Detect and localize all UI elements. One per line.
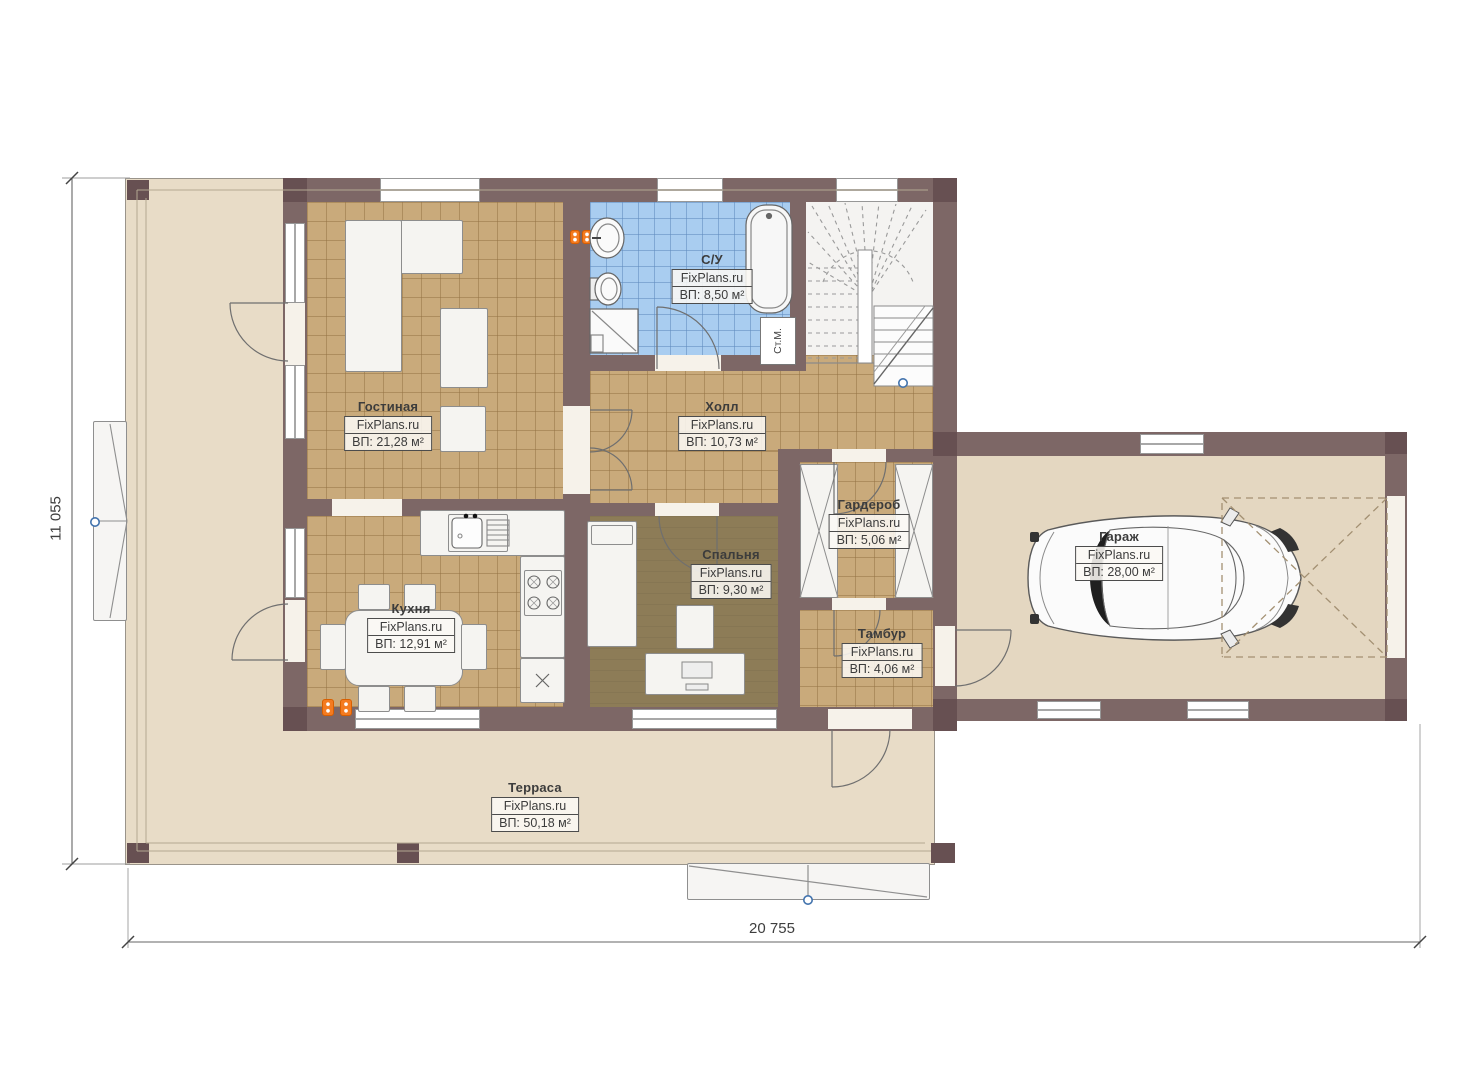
toilet [590,273,621,305]
kitchen-sink-icon [452,514,509,548]
room-area: ВП: 28,00 м² [1076,564,1162,580]
watermark: FixPlans.ru [673,270,752,287]
room-info-box: FixPlans.ru ВП: 28,00 м² [1075,546,1163,581]
washing-machine-label: Ст.М. [772,328,784,354]
desk-items [682,662,712,690]
room-area: ВП: 12,91 м² [368,636,454,652]
room-name: Гостиная [344,399,432,414]
room-area: ВП: 10,73 м² [679,434,765,450]
room-info-box: FixPlans.ru ВП: 12,91 м² [367,618,455,653]
room-label-vestibule: Тамбур FixPlans.ru ВП: 4,06 м² [842,626,923,678]
room-label-garage: Гараж FixPlans.ru ВП: 28,00 м² [1075,529,1163,581]
watermark: FixPlans.ru [368,619,454,636]
shower-tray [590,309,638,353]
room-area: ВП: 4,06 м² [843,661,922,677]
watermark: FixPlans.ru [1076,547,1162,564]
plan-graphics [0,0,1474,1080]
terrace-edge-lines [137,190,931,851]
room-name: Гараж [1075,529,1163,544]
watermark: FixPlans.ru [692,565,771,582]
room-info-box: FixPlans.ru ВП: 5,06 м² [829,514,910,549]
watermark: FixPlans.ru [843,644,922,661]
terrace-window-opening-icon [98,424,127,618]
room-info-box: FixPlans.ru ВП: 50,18 м² [491,797,579,832]
room-area: ВП: 21,28 м² [345,434,431,450]
room-name: С/У [672,252,753,267]
room-name: Терраса [491,780,579,795]
room-label-wardrobe: Гардероб FixPlans.ru ВП: 5,06 м² [829,497,910,549]
room-label-hall: Холл FixPlans.ru ВП: 10,73 м² [678,399,766,451]
watermark: FixPlans.ru [492,798,578,815]
room-area: ВП: 5,06 м² [830,532,909,548]
dimension-width-label: 20 755 [712,920,832,937]
room-area: ВП: 8,50 м² [673,287,752,303]
room-info-box: FixPlans.ru ВП: 10,73 м² [678,416,766,451]
room-name: Спальня [691,547,772,562]
room-area: ВП: 9,30 м² [692,582,771,598]
watermark: FixPlans.ru [345,417,431,434]
floor-plan-canvas: Ст.М. Гостиная FixPlans.ru ВП: 21,28 м² … [0,0,1474,1080]
staircase [806,203,933,386]
room-info-box: FixPlans.ru ВП: 9,30 м² [691,564,772,599]
washing-machine: Ст.М. [760,317,796,365]
room-label-bathroom: С/У FixPlans.ru ВП: 8,50 м² [672,252,753,304]
car [1028,508,1301,648]
room-info-box: FixPlans.ru ВП: 21,28 м² [344,416,432,451]
room-info-box: FixPlans.ru ВП: 8,50 м² [672,269,753,304]
stove-icon [528,576,559,609]
watermark: FixPlans.ru [679,417,765,434]
room-label-bedroom: Спальня FixPlans.ru ВП: 9,30 м² [691,547,772,599]
room-label-terrace: Терраса FixPlans.ru ВП: 50,18 м² [491,780,579,832]
room-info-box: FixPlans.ru ВП: 4,06 м² [842,643,923,678]
room-name: Гардероб [829,497,910,512]
dimension-height-label: 11 055 [48,489,65,549]
cabinet-x-icon [536,674,549,687]
room-name: Холл [678,399,766,414]
bathroom-sink [590,218,624,258]
room-area: ВП: 50,18 м² [492,815,578,831]
watermark: FixPlans.ru [830,515,909,532]
room-label-kitchen: Кухня FixPlans.ru ВП: 12,91 м² [367,601,455,653]
room-name: Кухня [367,601,455,616]
room-label-living: Гостиная FixPlans.ru ВП: 21,28 м² [344,399,432,451]
bathtub [746,205,792,313]
room-name: Тамбур [842,626,923,641]
